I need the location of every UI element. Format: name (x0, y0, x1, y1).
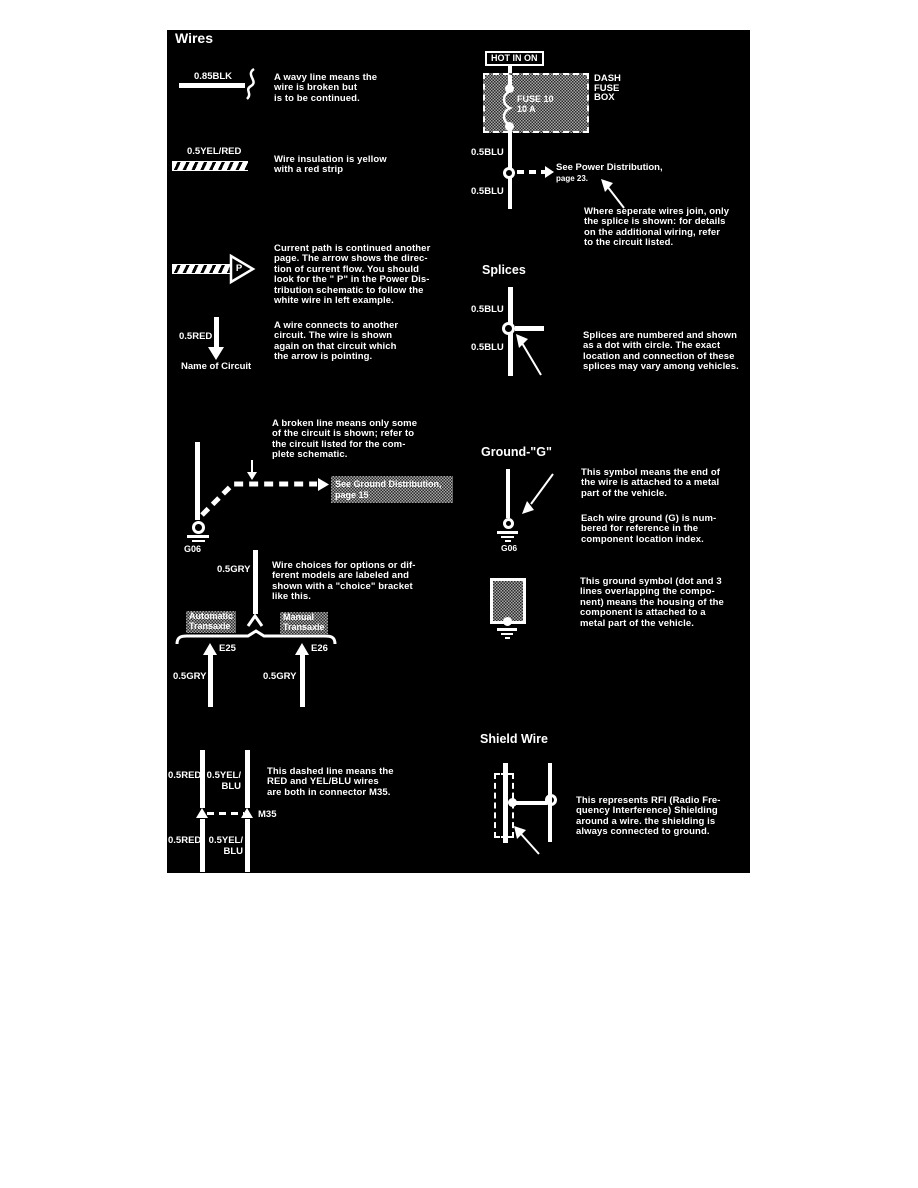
power-dist-ref-page: page 23. (556, 174, 588, 183)
choice-left-wire-label: 0.5GRY (173, 671, 206, 682)
circuit-name-label: Name of Circuit (181, 361, 251, 372)
circuit-arrow-shaft (214, 317, 219, 348)
m35-wire2-top (245, 750, 250, 808)
ground-terminal-icon (503, 518, 514, 529)
fuse-wire-bottom (508, 129, 512, 169)
wire-label-05yelred: 0.5YEL/RED (187, 146, 241, 157)
ground-side-wire (548, 763, 552, 842)
e26-arrowhead-icon (295, 643, 309, 655)
m35-yel-bottom-label: 0.5YEL/ BLU (208, 835, 243, 857)
shield-callout-arrow-icon (512, 825, 542, 857)
splice-blu-bottom-label: 0.5BLU (471, 342, 504, 353)
hot-in-on-tag: HOT IN ON (485, 51, 544, 66)
ground-callout-arrow-icon (519, 472, 557, 516)
ground-description-2: Each wire ground (G) is num- bered for r… (581, 514, 716, 545)
choice-right-wire-label: 0.5GRY (263, 671, 296, 682)
splice-callout-arrow-icon (514, 333, 544, 377)
wavy-description: A wavy line means the wire is broken but… (274, 73, 377, 104)
shield-description: This represents RFI (Radio Fre- quency I… (576, 796, 721, 838)
power-dist-arrowhead-icon (545, 166, 554, 178)
m35-description: This dashed line means the RED and YEL/B… (267, 767, 394, 798)
ground-distribution-refbox: See Ground Distribution, page 15 (331, 476, 453, 503)
ground-id-label: G06 (501, 543, 517, 553)
splice-join-description: Where seperate wires join, only the spli… (584, 207, 729, 249)
ground-bar (501, 536, 514, 538)
choice-option-automatic-label: Automatic Transaxle (189, 612, 233, 632)
power-dist-dashed-line (517, 170, 545, 174)
ground-description-1: This symbol means the end of the wire is… (581, 468, 720, 499)
wiring-legend-panel: Wires 0.85BLK A wavy line means the wire… (167, 30, 750, 873)
ground-id-label: G06 (184, 544, 201, 554)
e25-wire (208, 655, 213, 707)
power-dist-ref-text: See Power Distribution, (556, 162, 663, 173)
m35-connector-label: M35 (258, 809, 276, 820)
blu-wire-bottom-label: 0.5BLU (471, 186, 504, 197)
ground-terminal-icon (192, 521, 205, 534)
wavy-break-icon (243, 68, 259, 100)
splices-description: Splices are numbered and shown as a dot … (583, 331, 739, 373)
ground-bar (192, 540, 205, 542)
m35-red-top-label: 0.5RED (168, 770, 201, 781)
ground-bar (505, 637, 510, 639)
insulation-description: Wire insulation is yellow with a red str… (274, 155, 387, 176)
ground-bar (505, 540, 511, 542)
e26-label: E26 (311, 643, 328, 654)
housing-ground-description: This ground symbol (dot and 3 lines over… (580, 577, 724, 629)
m35-wire1-top (200, 750, 205, 808)
e26-wire (300, 655, 305, 707)
dash-fuse-box-label: DASH FUSE BOX (594, 74, 621, 103)
ground-bar (497, 531, 518, 534)
e25-label: E25 (219, 643, 236, 654)
blu-wire-top-label: 0.5BLU (471, 147, 504, 158)
housing-ground-dot (503, 617, 512, 626)
e25-arrowhead-icon (203, 643, 217, 655)
shield-ground-link (513, 801, 547, 805)
ground-heading: Ground-"G" (481, 445, 552, 459)
circuit-arrowhead-icon (208, 347, 224, 360)
m35-wire2-bottom (245, 819, 250, 872)
broken-line-description: A broken line means only some of the cir… (272, 419, 417, 461)
shield-junction-dot (508, 798, 517, 807)
choice-wire-segment (253, 550, 258, 614)
striped-wire-segment (172, 161, 248, 171)
splices-heading: Splices (482, 263, 526, 277)
ground-wire (506, 469, 510, 518)
scanned-manual-page: Wires 0.85BLK A wavy line means the wire… (0, 0, 918, 1188)
shield-wire-heading: Shield Wire (480, 732, 548, 746)
ground-distribution-ref-text: See Ground Distribution, page 15 (335, 479, 449, 500)
fuse-element-icon (500, 90, 514, 126)
wire-segment (179, 83, 245, 88)
splice-branch-wire (515, 326, 544, 331)
current-path-description: Current path is continued another page. … (274, 244, 430, 306)
choice-description: Wire choices for options or dif- ferent … (272, 561, 416, 603)
ground-bar (187, 535, 209, 538)
current-path-wire (172, 264, 231, 274)
fuse-rating-label: FUSE 10 10 A (517, 94, 554, 114)
page-title: Wires (175, 30, 213, 46)
current-path-p-label: P (232, 263, 246, 274)
splice-wire-below (508, 176, 512, 209)
wire-label-085blk: 0.85BLK (194, 71, 232, 82)
choice-chevron-icon (246, 615, 264, 627)
connect-description: A wire connects to another circuit. The … (274, 321, 398, 363)
dashed-continuation-line (197, 474, 332, 519)
m35-dashed-link (207, 812, 244, 815)
choice-top-wire-label: 0.5GRY (217, 564, 250, 575)
splice-blu-top-label: 0.5BLU (471, 304, 504, 315)
ground-bar (501, 633, 513, 635)
m35-red-bottom-label: 0.5RED (168, 835, 201, 846)
wire-label-05red: 0.5RED (179, 331, 212, 342)
ground-bar (497, 628, 517, 631)
m35-yel-top-label: 0.5YEL/ BLU (206, 770, 241, 792)
